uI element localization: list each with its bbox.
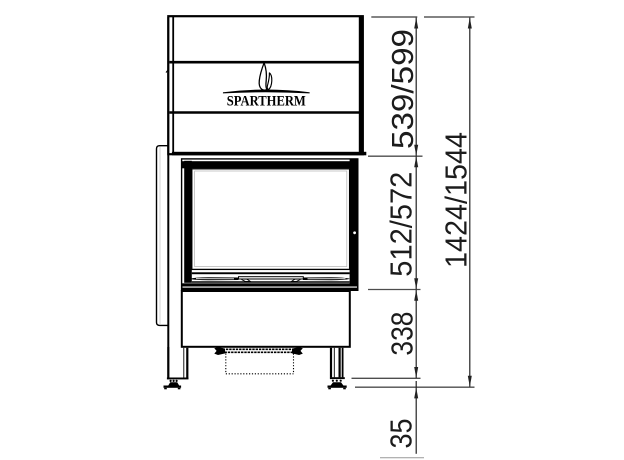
- svg-text:338: 338: [385, 312, 420, 356]
- svg-text:1424/1544: 1424/1544: [438, 132, 473, 268]
- svg-text:539/599: 539/599: [385, 29, 420, 149]
- svg-text:35: 35: [384, 419, 419, 449]
- svg-text:512/572: 512/572: [384, 172, 419, 277]
- svg-text:SPARTHERM: SPARTHERM: [227, 93, 306, 109]
